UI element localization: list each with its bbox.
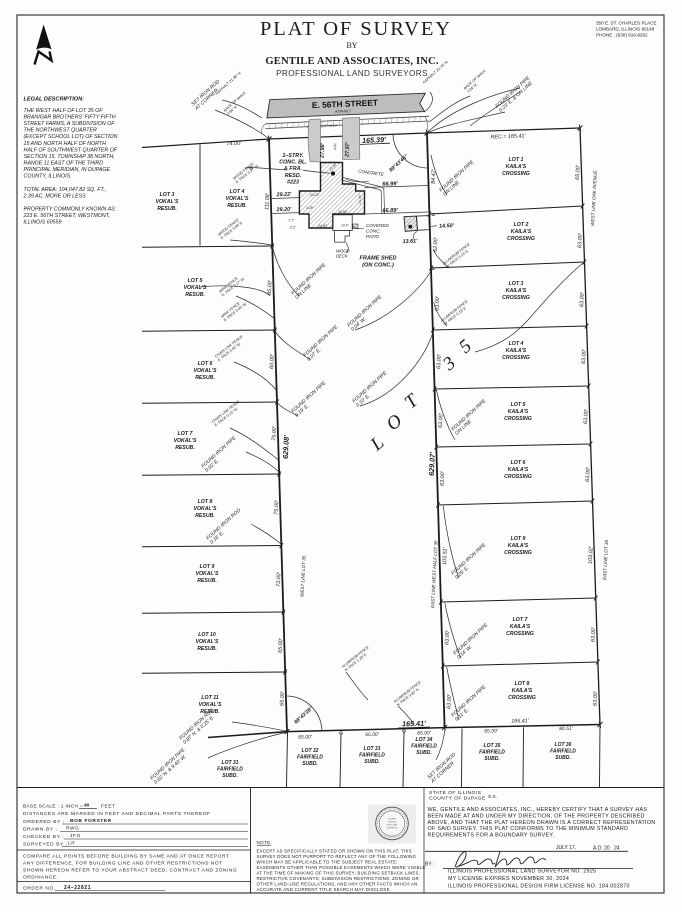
svg-text:AT THE TIME OF MAKING OF THIS: AT THE TIME OF MAKING OF THIS SURVEY; BU… — [257, 871, 421, 876]
svg-text:A.D. 20: A.D. 20 — [593, 845, 610, 851]
svg-text:VOKAL'S: VOKAL'S — [196, 639, 219, 645]
svg-text:40: 40 — [84, 803, 90, 809]
svg-text:ILLINOIS PROFESSIONAL LAND SUR: ILLINOIS PROFESSIONAL LAND SURVEYOR NO. … — [448, 869, 596, 875]
svg-text:ASP.: ASP. — [333, 142, 337, 150]
svg-text:73.00': 73.00' — [276, 571, 283, 587]
svg-text:REQUIREMENTS FOR A BOUNDARY SU: REQUIREMENTS FOR A BOUNDARY SURVEY. — [428, 833, 555, 839]
svg-text:BASE SCALE : 1 INCH =: BASE SCALE : 1 INCH = — [23, 804, 83, 810]
svg-text:WE, GENTILE AND ASSOCIATES, IN: WE, GENTILE AND ASSOCIATES, INC., HEREBY… — [428, 807, 648, 813]
svg-text:LEGAL DESCRIPTION:: LEGAL DESCRIPTION: — [24, 97, 85, 103]
svg-text:RESUB.: RESUB. — [185, 292, 205, 298]
svg-text:LOT 35: LOT 35 — [484, 743, 501, 749]
svg-text:LOT 8: LOT 8 — [515, 681, 530, 687]
svg-text:66.89': 66.89' — [382, 208, 398, 214]
svg-text:RESD.: RESD. — [285, 173, 302, 179]
svg-text:ILLINOIS PROFESSIONAL DESIGN F: ILLINOIS PROFESSIONAL DESIGN FIRM LICENS… — [448, 883, 630, 889]
svg-text:COMPARE ALL POINTS BEFORE BUIL: COMPARE ALL POINTS BEFORE BUILDING BY SA… — [23, 853, 229, 859]
svg-text:66.99': 66.99' — [382, 181, 398, 187]
svg-text:KAILA'S: KAILA'S — [508, 409, 529, 415]
svg-text:DRAWN BY :: DRAWN BY : — [23, 826, 57, 832]
svg-text:OTHER LAND–USE REGULATIONS, AN: OTHER LAND–USE REGULATIONS, AND ANY OTHE… — [257, 882, 418, 887]
svg-text:JFG: JFG — [70, 833, 81, 839]
svg-text:THE WEST HALF OF LOT 35 OF: THE WEST HALF OF LOT 35 OF — [24, 108, 104, 114]
svg-text:SUBD.: SUBD. — [484, 756, 500, 762]
svg-text:LOT 4: LOT 4 — [509, 341, 524, 347]
svg-text:BY: BY — [346, 41, 357, 50]
svg-text:LOT 36: LOT 36 — [555, 742, 572, 748]
svg-text:KAILA'S: KAILA'S — [512, 688, 533, 694]
svg-text:23.25': 23.25' — [358, 194, 362, 205]
svg-text:24.22': 24.22' — [309, 193, 320, 197]
svg-text:LOT 34: LOT 34 — [416, 737, 433, 743]
svg-text:65.00': 65.00' — [417, 730, 432, 736]
svg-text:LOT 7: LOT 7 — [178, 431, 194, 437]
svg-text:THE NORTHWEST QUARTER: THE NORTHWEST QUARTER — [24, 128, 98, 134]
svg-text:LOT 5: LOT 5 — [511, 402, 526, 408]
svg-text:PRINCIPAL MERIDIAN, IN DUPAGE: PRINCIPAL MERIDIAN, IN DUPAGE — [24, 167, 111, 173]
svg-text:629.07': 629.07' — [427, 452, 437, 476]
svg-text:ABOVE, AND THAT THE PLAT HEREO: ABOVE, AND THAT THE PLAT HEREON DRAWN IS… — [428, 820, 656, 826]
svg-text:FAIRFIELD: FAIRFIELD — [550, 749, 576, 755]
svg-text:111.08': 111.08' — [264, 192, 271, 210]
svg-text:29.22': 29.22' — [275, 192, 292, 199]
svg-text:LOT 33: LOT 33 — [364, 746, 381, 752]
svg-text:63.00': 63.00' — [590, 626, 597, 642]
svg-text:SUBD.: SUBD. — [364, 759, 380, 765]
svg-text:LOT 5: LOT 5 — [188, 278, 203, 284]
svg-text:#223: #223 — [287, 179, 299, 185]
svg-text:JULY 17,: JULY 17, — [556, 845, 576, 851]
svg-text:TOTAL AREA: 104,047.82 SQ. FT.: TOTAL AREA: 104,047.82 SQ. FT., — [24, 187, 107, 193]
svg-text:62.00': 62.00' — [433, 236, 440, 252]
svg-text:RANGE 11 EAST OF THE THIRD: RANGE 11 EAST OF THE THIRD — [24, 160, 104, 166]
svg-text:63.00': 63.00' — [579, 291, 586, 307]
svg-text:PROPERTY COMMONLY KNOWN AS:: PROPERTY COMMONLY KNOWN AS: — [24, 207, 117, 213]
svg-text:VOKAL'S: VOKAL'S — [174, 438, 197, 444]
svg-text:29.20': 29.20' — [275, 207, 292, 214]
svg-text:85.00': 85.00' — [267, 279, 274, 295]
svg-text:103.02': 103.02' — [588, 545, 595, 564]
svg-text:EXCEPT AS SPECIFICALLY STATED: EXCEPT AS SPECIFICALLY STATED OR SHOWN O… — [257, 849, 412, 854]
svg-text:RESTRICTIVE COVENANTS; SUBDIVI: RESTRICTIVE COVENANTS; SUBDIVISION RESTR… — [257, 876, 419, 881]
svg-text:RESUB.: RESUB. — [197, 646, 217, 652]
svg-text:SECTION 15, TOWNSHIP 38 NORTH,: SECTION 15, TOWNSHIP 38 NORTH, — [24, 154, 115, 160]
svg-text:LOT 4: LOT 4 — [230, 189, 245, 195]
svg-text:63.00': 63.00' — [592, 690, 599, 706]
svg-text:2.39 AC. MORE OR LESS: 2.39 AC. MORE OR LESS — [23, 194, 87, 200]
svg-text:COVERED: COVERED — [366, 223, 389, 228]
svg-text:MY LICENSE EXPIRES NOVEMBER 30: MY LICENSE EXPIRES NOVEMBER 30, 2024 — [448, 876, 569, 882]
svg-text:RESUB.: RESUB. — [195, 513, 215, 519]
svg-text:S.S.: S.S. — [488, 794, 497, 800]
svg-text:27.98': 27.98' — [319, 142, 326, 159]
svg-text:SUBD.: SUBD. — [302, 761, 318, 767]
svg-text:LR: LR — [68, 841, 75, 847]
svg-text:65.00': 65.00' — [365, 732, 380, 738]
svg-text:CROSSING: CROSSING — [502, 355, 530, 361]
svg-text:LOT 31: LOT 31 — [222, 760, 239, 766]
svg-text:10.8': 10.8' — [341, 223, 349, 227]
svg-text:LOT 3: LOT 3 — [509, 281, 524, 287]
svg-text:FAIRFIELD: FAIRFIELD — [359, 753, 385, 759]
svg-text:63.00': 63.00' — [440, 470, 447, 486]
svg-text:BRANIGAR BROTHERS' FIFTY FIFTH: BRANIGAR BROTHERS' FIFTY FIFTH — [24, 115, 116, 121]
svg-text:GENTILE AND ASSOCIATES, INC.: GENTILE AND ASSOCIATES, INC. — [265, 56, 438, 67]
svg-text:CROSSING: CROSSING — [504, 474, 532, 480]
svg-text:LOT 9: LOT 9 — [200, 564, 215, 570]
svg-text:CROSSING: CROSSING — [507, 236, 535, 242]
svg-text:63.00': 63.00' — [444, 629, 451, 645]
svg-text:RESUB.: RESUB. — [175, 445, 195, 451]
svg-text:SUBD.: SUBD. — [555, 755, 571, 761]
svg-text:PLAT OF SURVEY: PLAT OF SURVEY — [260, 18, 452, 40]
svg-text:LOT 9: LOT 9 — [511, 536, 526, 542]
svg-text:DECK: DECK — [336, 254, 348, 259]
svg-text:FAIRFIELD: FAIRFIELD — [217, 767, 243, 773]
svg-text:RWG: RWG — [66, 826, 80, 832]
svg-text:STATE OF ILLINOIS: STATE OF ILLINOIS — [429, 790, 482, 796]
svg-text:629.08': 629.08' — [281, 435, 291, 459]
svg-text:LOT 1: LOT 1 — [509, 157, 524, 163]
svg-text:LOT 3: LOT 3 — [160, 192, 175, 198]
svg-text:ASPHALT: ASPHALT — [334, 109, 352, 114]
svg-text:CROSSING: CROSSING — [508, 695, 536, 701]
svg-text:BY :: BY : — [425, 862, 434, 868]
svg-text:4.28': 4.28' — [306, 206, 314, 210]
svg-text:3.2': 3.2' — [290, 226, 296, 230]
svg-text:KAILA'S: KAILA'S — [508, 543, 529, 549]
svg-text:84.47': 84.47' — [431, 168, 438, 184]
svg-text:NOTE:: NOTE: — [257, 840, 273, 845]
svg-text:65.00': 65.00' — [484, 728, 499, 734]
svg-text:WHICH MAY BE APPLICABLE TO THE: WHICH MAY BE APPLICABLE TO THE SUBJECT R… — [257, 860, 398, 865]
svg-text:65.00': 65.00' — [279, 690, 286, 706]
svg-text:OF SAID SURVEY. THIS PLAT CONF: OF SAID SURVEY. THIS PLAT CONFORMS TO TH… — [428, 826, 629, 832]
svg-text:KAILA'S: KAILA'S — [506, 288, 527, 294]
svg-text:SURVEY DOES NOT PURPORT TO REF: SURVEY DOES NOT PURPORT TO REFLECT ANY O… — [257, 854, 417, 859]
svg-text:1–STRY.: 1–STRY. — [282, 153, 304, 159]
svg-text:60.00': 60.00' — [269, 353, 276, 369]
svg-text:75.00': 75.00' — [274, 499, 281, 515]
svg-text:VOKAL'S: VOKAL'S — [196, 571, 219, 577]
svg-text:CROSSING: CROSSING — [504, 416, 532, 422]
svg-text:SHOWN HEREON REFER TO YOUR ABS: SHOWN HEREON REFER TO YOUR ABSTRACT DEED… — [23, 867, 237, 873]
svg-text:FEET: FEET — [101, 804, 116, 810]
svg-text:SURVEYED BY :: SURVEYED BY : — [23, 841, 68, 847]
svg-text:FAIRFIELD: FAIRFIELD — [297, 755, 323, 761]
svg-text:LOT 2: LOT 2 — [514, 222, 529, 228]
svg-text:SURVEYOR: SURVEYOR — [387, 828, 398, 830]
svg-text:BOB FORSTER: BOB FORSTER — [70, 818, 112, 824]
svg-text:27.97': 27.97' — [344, 141, 351, 158]
svg-text:80.51': 80.51' — [559, 726, 574, 732]
svg-text:COUNTY, ILLINOIS.: COUNTY, ILLINOIS. — [24, 174, 72, 180]
svg-text:65.00': 65.00' — [298, 734, 313, 740]
svg-text:KAILA'S: KAILA'S — [510, 624, 531, 630]
svg-text:63.00': 63.00' — [585, 466, 592, 482]
svg-text:FAIRFIELD: FAIRFIELD — [411, 744, 437, 750]
svg-text:RESUB.: RESUB. — [157, 206, 177, 212]
svg-text:EASEMENTS OTHER THAN POSSIBLE: EASEMENTS OTHER THAN POSSIBLE EASEMENTS … — [257, 865, 426, 870]
svg-text:LOT 11: LOT 11 — [201, 695, 218, 701]
svg-text:ORDINANCE.: ORDINANCE. — [23, 874, 58, 880]
svg-text:RESUB.: RESUB. — [197, 578, 217, 584]
svg-text:LOT 7: LOT 7 — [513, 617, 529, 623]
svg-text:FRAME SHED: FRAME SHED — [360, 256, 397, 262]
svg-text:REC.= 165.41': REC.= 165.41' — [490, 133, 526, 140]
svg-text:223 E. 56TH STREET, WESTMONT,: 223 E. 56TH STREET, WESTMONT, — [23, 213, 110, 219]
svg-text:VOKAL'S: VOKAL'S — [184, 285, 207, 291]
svg-text:KAILA'S: KAILA'S — [511, 229, 532, 235]
svg-text:PHONE : (630) 916-8262: PHONE : (630) 916-8262 — [596, 33, 648, 38]
svg-text:VOKAL'S: VOKAL'S — [194, 506, 217, 512]
svg-text:FAIRFIELD: FAIRFIELD — [479, 750, 505, 756]
svg-text:LOT 10: LOT 10 — [198, 632, 216, 638]
svg-text:CROSSING: CROSSING — [506, 631, 534, 637]
svg-text:63.00': 63.00' — [577, 232, 584, 248]
svg-text:ORDER NO.: ORDER NO. — [23, 886, 56, 892]
svg-text:CONC.: CONC. — [366, 229, 381, 234]
svg-text:LOT 6: LOT 6 — [511, 460, 526, 466]
svg-text:ANY DIFFERENCE. FOR BUILDING L: ANY DIFFERENCE. FOR BUILDING LINE AND OT… — [23, 860, 223, 866]
svg-text:PROFESSIONAL LAND SURVEYORS: PROFESSIONAL LAND SURVEYORS — [276, 69, 428, 78]
svg-text:CONC. BL.: CONC. BL. — [279, 160, 307, 166]
svg-text:24: 24 — [614, 845, 620, 851]
svg-text:RESUB.: RESUB. — [195, 375, 215, 381]
svg-text:165.41': 165.41' — [511, 718, 530, 724]
svg-text:KAILA'S: KAILA'S — [506, 348, 527, 354]
svg-text:HALF OF SOUTHWEST QUARTER OF: HALF OF SOUTHWEST QUARTER OF — [24, 147, 118, 153]
svg-text:DISTANCES ARE MARKED IN FEET A: DISTANCES ARE MARKED IN FEET AND DECIMAL… — [23, 811, 211, 817]
svg-text:CROSSING: CROSSING — [504, 550, 532, 556]
svg-text:RESUB.: RESUB. — [227, 203, 247, 209]
svg-text:PATIO: PATIO — [366, 234, 380, 239]
svg-text:BEEN MADE AT AND UNDER MY DIRE: BEEN MADE AT AND UNDER MY DIRECTION, OF … — [428, 813, 645, 819]
svg-text:SUBD.: SUBD. — [222, 773, 238, 779]
svg-text:CROSSING: CROSSING — [502, 295, 530, 301]
svg-text:PROF. LAND: PROF. LAND — [387, 824, 398, 827]
svg-text:LOT 32: LOT 32 — [302, 748, 319, 754]
svg-text:63.00': 63.00' — [583, 408, 590, 424]
svg-text:KAILA'S: KAILA'S — [508, 467, 529, 473]
svg-text:COUNTY OF DuPAGE: COUNTY OF DuPAGE — [429, 796, 486, 802]
svg-text:63.00': 63.00' — [446, 693, 453, 709]
svg-text:350 E. ST. CHARLES PLACE: 350 E. ST. CHARLES PLACE — [596, 21, 657, 26]
svg-text:& FRA.: & FRA. — [284, 166, 302, 172]
svg-text:7.7': 7.7' — [288, 219, 294, 223]
svg-text:ILLINOIS 60559: ILLINOIS 60559 — [24, 220, 62, 226]
svg-text:ACCURATE AND CURRENT TITLE SEA: ACCURATE AND CURRENT TITLE SEARCH MAY DI… — [257, 887, 392, 892]
svg-text:75.00': 75.00' — [271, 425, 278, 441]
svg-text:103.51': 103.51' — [442, 546, 449, 565]
svg-text:13.61': 13.61' — [402, 239, 418, 246]
svg-text:JOSEPH: JOSEPH — [388, 819, 397, 821]
svg-text:24.40': 24.40' — [317, 224, 328, 228]
svg-text:LOT 6: LOT 6 — [198, 361, 213, 367]
svg-text:(EXCEPT SCHOOL LOT) OF SECTION: (EXCEPT SCHOOL LOT) OF SECTION — [24, 134, 118, 140]
svg-text:KAILA'S: KAILA'S — [506, 164, 527, 170]
svg-text:LOT 8: LOT 8 — [198, 499, 213, 505]
svg-text:CROSSING: CROSSING — [502, 171, 530, 177]
svg-text:STREET FARMS, A SUBDIVISION OF: STREET FARMS, A SUBDIVISION OF — [24, 121, 116, 127]
svg-text:LOMBARD, ILLINOIS 60148: LOMBARD, ILLINOIS 60148 — [596, 27, 655, 32]
svg-text:F. MICHELI: F. MICHELI — [387, 822, 397, 824]
svg-text:CHECKED BY :: CHECKED BY : — [23, 834, 64, 840]
svg-text:15 AND NORTH HALF OF NORTH: 15 AND NORTH HALF OF NORTH — [24, 141, 107, 147]
svg-text:63.00': 63.00' — [581, 348, 588, 364]
svg-text:SUBD.: SUBD. — [416, 750, 432, 756]
svg-text:VOKAL'S: VOKAL'S — [226, 196, 249, 202]
svg-text:14.50': 14.50' — [439, 223, 455, 230]
svg-text:65.00': 65.00' — [278, 637, 285, 653]
svg-text:ORDERED BY :: ORDERED BY : — [23, 819, 65, 825]
svg-text:65.00': 65.00' — [575, 164, 582, 180]
svg-text:VOKAL'S: VOKAL'S — [156, 199, 179, 205]
svg-text:VOKAL'S: VOKAL'S — [194, 368, 217, 374]
svg-text:34.80': 34.80' — [338, 210, 348, 214]
svg-text:74.00': 74.00' — [226, 140, 242, 147]
svg-text:(ON CONC.): (ON CONC.) — [362, 263, 394, 269]
svg-text:24–22821: 24–22821 — [64, 885, 91, 891]
